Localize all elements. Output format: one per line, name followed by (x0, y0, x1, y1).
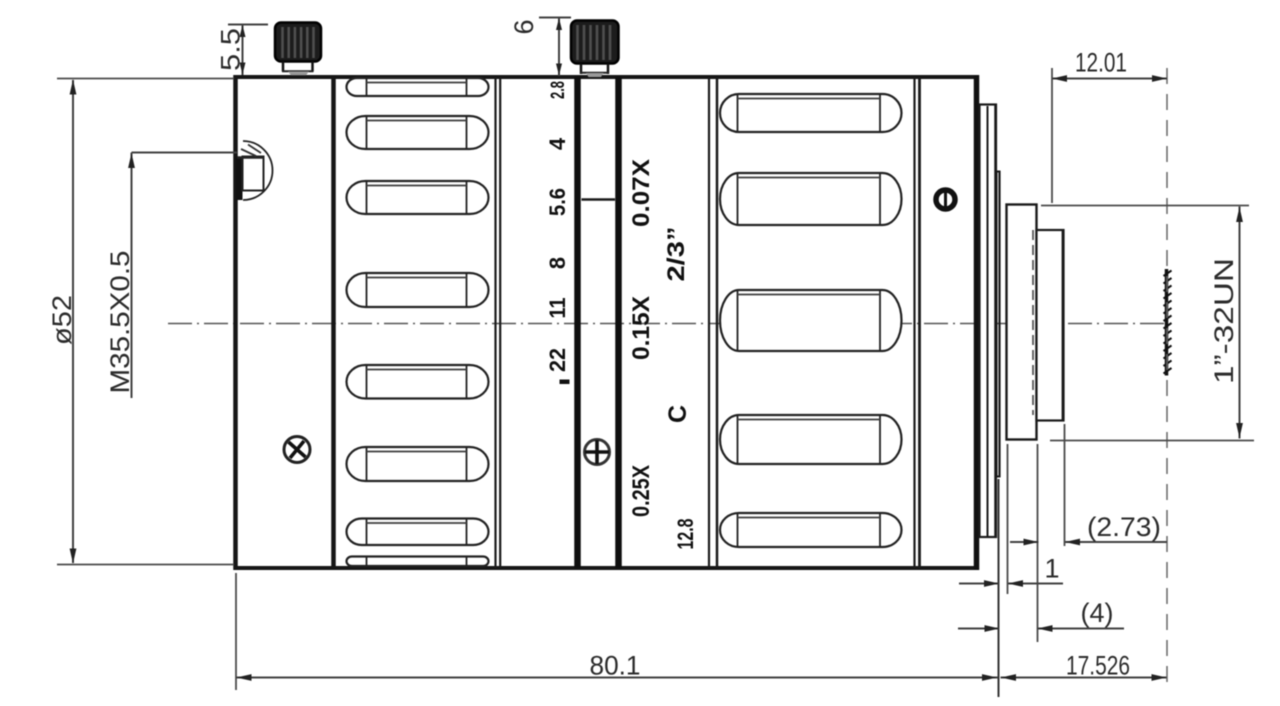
svg-text:5.5: 5.5 (216, 28, 246, 71)
svg-text:(2.73): (2.73) (1087, 512, 1161, 542)
svg-text:0.15X: 0.15X (628, 296, 655, 360)
svg-text:(4): (4) (1081, 598, 1114, 628)
svg-text:8: 8 (545, 257, 570, 269)
svg-text:80.1: 80.1 (590, 651, 641, 681)
svg-text:ø52: ø52 (47, 295, 77, 345)
svg-text:12.8: 12.8 (673, 519, 698, 550)
svg-text:2/3”: 2/3” (663, 227, 690, 282)
svg-text:2.8: 2.8 (548, 81, 569, 99)
svg-text:C: C (664, 405, 692, 423)
svg-text:5.6: 5.6 (545, 188, 570, 216)
svg-text:4: 4 (545, 137, 570, 150)
svg-text:6: 6 (509, 19, 539, 34)
svg-text:0.25X: 0.25X (628, 465, 655, 517)
svg-text:M35.5X0.5: M35.5X0.5 (105, 251, 135, 394)
svg-text:0.07X: 0.07X (628, 159, 655, 227)
svg-text:17.526: 17.526 (1066, 651, 1130, 681)
svg-text:22: 22 (545, 348, 570, 372)
svg-text:1”-32UN: 1”-32UN (1209, 258, 1239, 384)
svg-text:12.01: 12.01 (1075, 48, 1127, 78)
svg-text:11: 11 (545, 298, 570, 319)
svg-text:1: 1 (1044, 554, 1059, 584)
